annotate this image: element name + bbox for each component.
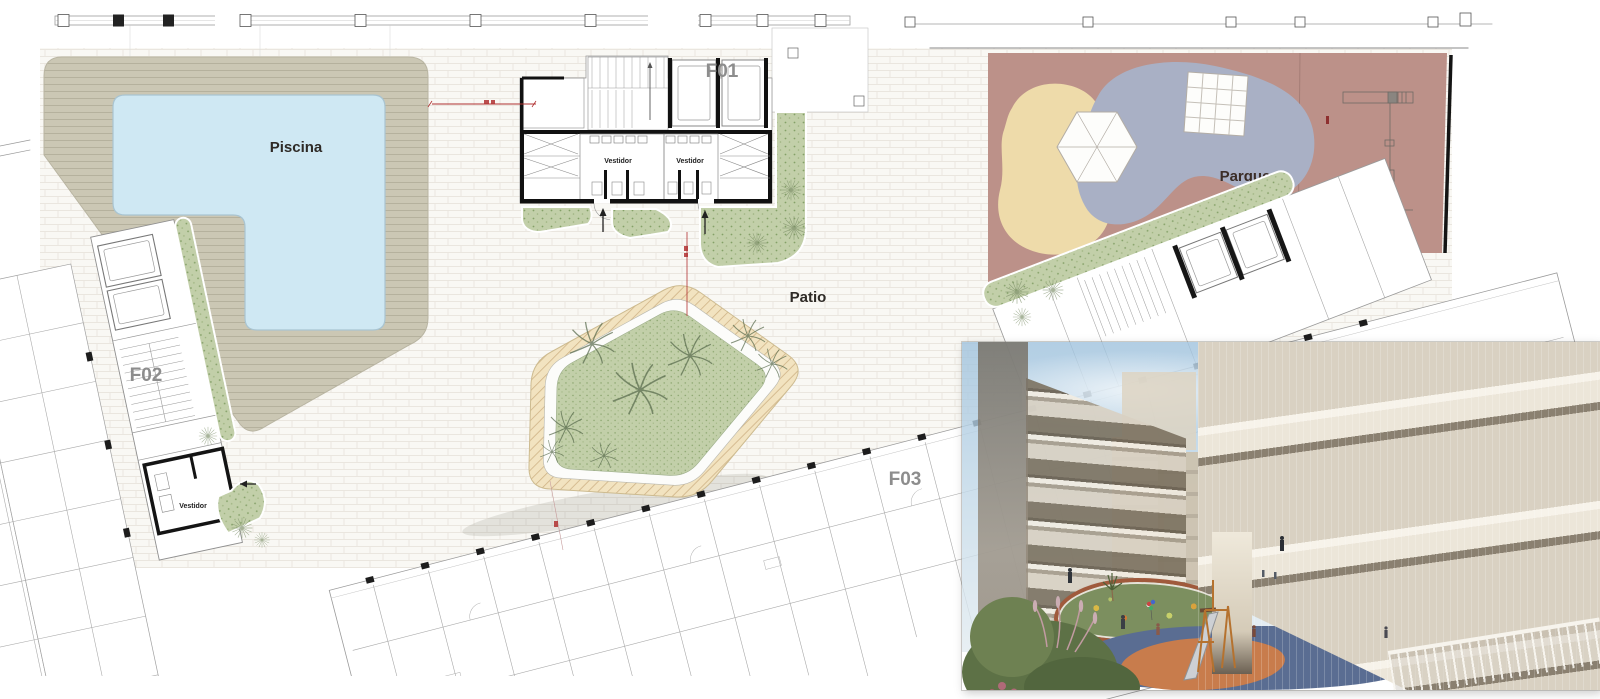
pool-label: Piscina	[270, 139, 323, 156]
dimension-mark	[1326, 116, 1329, 124]
render-slide	[1184, 580, 1235, 680]
render-plants	[962, 596, 1140, 690]
courtyard-render-inset	[962, 342, 1600, 690]
site-plan-sheet: Parque Piscina Patio	[0, 0, 1600, 699]
f02-vestidor-label: Vestidor	[179, 503, 207, 510]
f01-vestidor-label-right: Vestidor	[676, 158, 704, 165]
f03-label: F03	[889, 469, 922, 490]
render-garden-palm	[1103, 573, 1122, 601]
f01-label: F01	[706, 61, 739, 82]
f02-label: F02	[130, 365, 163, 386]
sheet-bottom-margin	[0, 676, 962, 699]
render-details	[962, 342, 1600, 690]
f01-vestidor-label-left: Vestidor	[604, 158, 632, 165]
render-balloons-icon	[1147, 600, 1155, 620]
render-person-walkway	[1280, 536, 1284, 551]
pergola-grid-icon	[1184, 72, 1248, 136]
patio-label: Patio	[790, 289, 827, 306]
f01-entry-plaza	[772, 28, 868, 112]
